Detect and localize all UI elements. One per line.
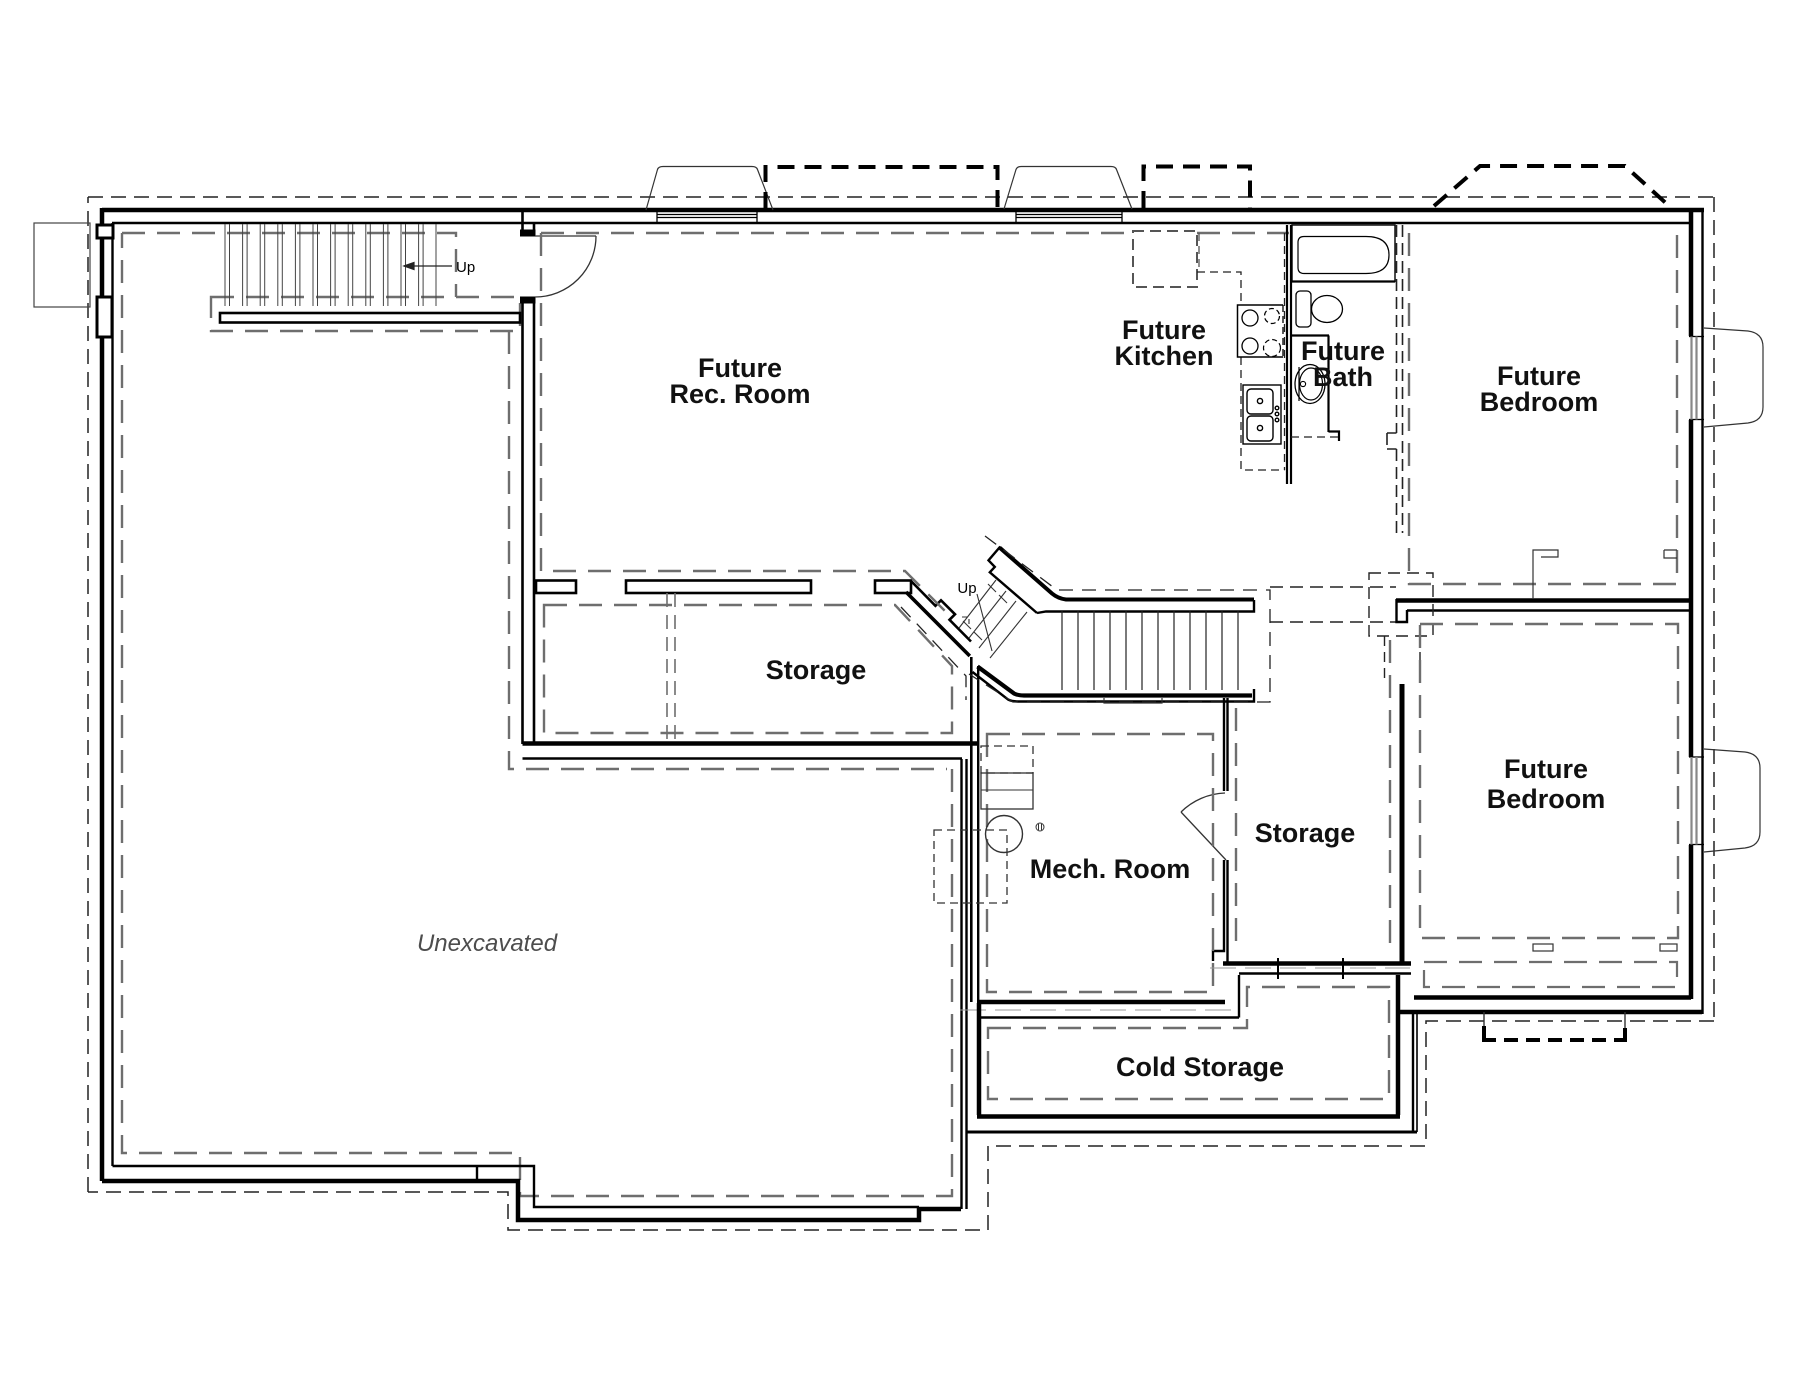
- svg-text:Unexcavated: Unexcavated: [417, 930, 558, 957]
- svg-text:Up: Up: [456, 259, 475, 276]
- svg-text:Mech. Room: Mech. Room: [1030, 854, 1191, 884]
- svg-text:Bedroom: Bedroom: [1487, 784, 1606, 814]
- svg-text:Cold Storage: Cold Storage: [1116, 1052, 1284, 1082]
- svg-text:Kitchen: Kitchen: [1114, 341, 1213, 371]
- svg-text:Bedroom: Bedroom: [1480, 387, 1599, 417]
- svg-text:Rec. Room: Rec. Room: [669, 379, 810, 409]
- svg-text:Bath: Bath: [1313, 362, 1373, 392]
- svg-text:Up: Up: [957, 580, 976, 597]
- svg-text:Future: Future: [1504, 754, 1588, 784]
- svg-text:Storage: Storage: [1255, 818, 1356, 848]
- svg-text:Storage: Storage: [766, 655, 867, 685]
